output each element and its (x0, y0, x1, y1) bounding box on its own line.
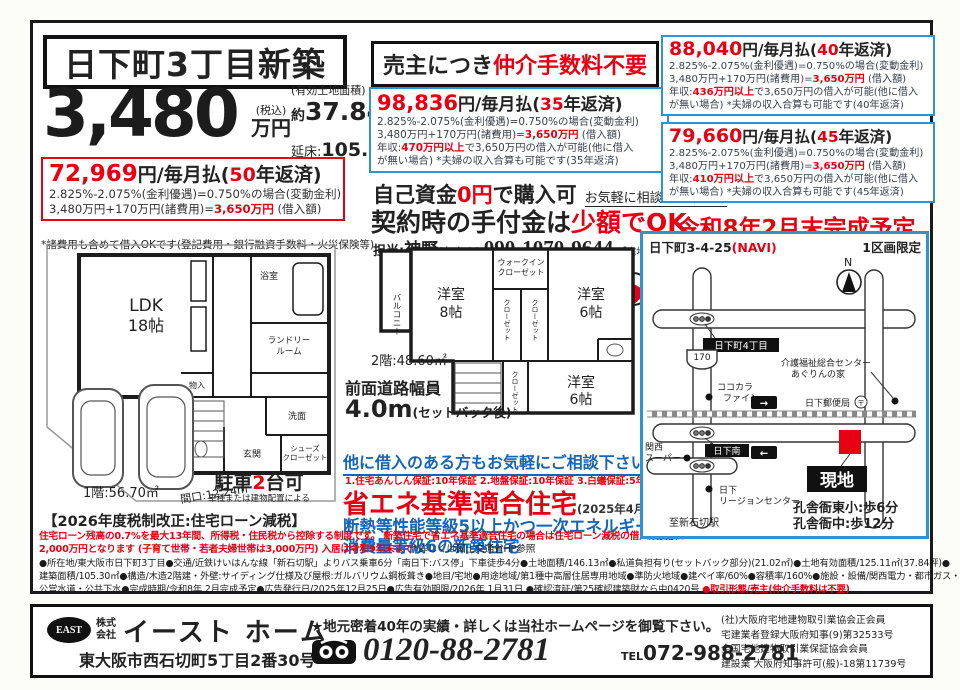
company-address: 東大阪市西石切町5丁目2番30号 (79, 647, 316, 671)
label-wic2: クローゼット (498, 267, 545, 277)
region-center-dot (706, 486, 713, 493)
t: 年収: (669, 174, 693, 185)
plan50-borrow: 3,650万円 (214, 202, 274, 216)
plan35-income2: が無い場合) *夫婦の収入合算も可能です(35年返済) (377, 155, 661, 168)
kansai-super-1: 関西 (645, 442, 663, 453)
label-room8-size: 8帖 (440, 305, 463, 321)
freedial-number: 0120-88-2781 (363, 632, 550, 669)
label-balcony: バルコニー (391, 293, 401, 336)
plan45-sum: 3,480万円+170万円(諸費用)=3,650万円 (借入額) (669, 161, 927, 174)
t: 年返済) (564, 95, 623, 115)
east-logo: EAST (47, 617, 91, 643)
plan50-years: 50 (229, 164, 255, 186)
detail-line-1: ●所在地/東大阪市日下町3丁目●交通/近鉄けいはんな線「新石切駅」よりバス乗車6… (39, 555, 950, 569)
kansai-super-2: スーパー (645, 453, 681, 464)
plan35-borrow: 3,650万円 (525, 129, 579, 141)
label-laundry2: ルーム (276, 347, 301, 357)
t: (借入額) (579, 129, 622, 141)
t: 円/毎月払( (458, 95, 540, 115)
plan45-amount: 79,660 (669, 125, 742, 147)
consult-other-loans: 他に借入のある方もお気軽にご相談下さい (343, 449, 647, 476)
plan35-rate: 2.825%-2.075%(金利優遇)=0.750%の場合(変動金利) (377, 116, 661, 129)
label-room6b: 洋室 (567, 374, 595, 391)
t: 公営水道・公共下水●完成時期/令和8年 2月完成予定●広告発行日/2025年12… (39, 584, 702, 595)
t: 年収: (669, 87, 693, 98)
plan50-amount: 72,969 (49, 161, 138, 187)
region-center-1: 日下 (719, 485, 737, 496)
walk-elementary: 孔舎衙東小:歩6分 (793, 500, 898, 516)
map-compass: N (837, 256, 861, 294)
region-center-2: リージョンセンター (719, 496, 800, 507)
area-2f: 2階:48.60㎡ (371, 354, 447, 369)
label-bath: 浴室 (260, 270, 278, 282)
cocokara-1: ココカラ (717, 382, 753, 393)
compass-n: N (844, 256, 852, 269)
leader-site (841, 454, 850, 466)
route-170: 170 (693, 353, 710, 363)
plan45-years: 45 (817, 128, 839, 146)
label-entrance: 玄関 (243, 448, 261, 460)
plan40-amount: 88,040 (669, 38, 742, 60)
t: 円/毎月払( (742, 41, 817, 59)
tax-note: *詳しくは国土交通省HP参照 (413, 544, 535, 555)
land-approx: 約 (291, 108, 305, 124)
t: で3,650万円の借入が可能(他に借入 (465, 142, 634, 154)
label-cl2: クローゼット (531, 299, 539, 341)
t: 円/毎月払( (138, 164, 230, 186)
badge-4chome: 日下町4丁目 (714, 341, 768, 352)
plan40-years: 40 (817, 41, 839, 59)
license-line: 全国宅地建物取引業保証協会会員 (721, 643, 906, 658)
label-shoes2: クローゼット (283, 452, 328, 462)
no-broker-fee-box: 売主につき仲介手数料不要 (371, 41, 659, 87)
plan40-income: 年収:436万円以上で3,650万円の借入が可能(他に借入 (669, 87, 927, 100)
tax-reform-line2: 2,000万円となります (子育て世帯・若者夫婦世帯は3,000万円) 入居は令… (39, 541, 535, 555)
site-marker (839, 430, 861, 454)
map-drawing: N 日下町4丁目 170 介護福祉総合センター あぐりんの家 ココカラ ファイン (643, 254, 920, 530)
road-setback-note: (セットバック後) (413, 405, 512, 420)
access-map: 日下町3-4-25(NAVI) 1区画限定 (640, 231, 929, 539)
detail-line-3: 公営水道・公共下水●完成時期/令和8年 2月完成予定●広告発行日/2025年12… (39, 581, 850, 595)
post-office: 日下郵便局 (805, 397, 850, 409)
plan40-sum: 3,480万円+170万円(諸費用)=3,650万円 (借入額) (669, 74, 927, 87)
t: (借入額) (274, 202, 322, 216)
t: (借入額) (865, 161, 906, 172)
arrow-right: → (760, 399, 768, 410)
post-mark: 〒 (857, 399, 865, 408)
t: で3,650万円の借入が可能(他に借入 (754, 174, 918, 185)
price-amount: 3,480 (43, 81, 237, 147)
label-wic1: ウォークイン (498, 258, 545, 267)
care-center-dot (892, 398, 899, 405)
t: 3,480万円+170万円(諸費用)= (49, 202, 214, 216)
plan40-headline: 88,040円/毎月払(40年返済) (669, 39, 927, 61)
main-frame: 日下町3丁目新築 3,480 (税込) 万円 (有効土地面積) 約37.84坪付… (30, 20, 933, 594)
label-shoes1: シューズ (290, 443, 320, 453)
label-laundry1: ランドリー (268, 336, 311, 346)
plan45-rate: 2.825%-2.075%(金利優遇)=0.750%の場合(変動金利) (669, 148, 927, 161)
road-width-num: 4.0m (345, 395, 413, 423)
plan35-headline: 98,836円/毎月払(35年返済) (377, 91, 661, 116)
plan40-income2: が無い場合) *夫婦の収入合算も可能です(40年返済) (669, 100, 927, 113)
plan45-headline: 79,660円/毎月払(45年返済) (669, 126, 927, 148)
license-block: (社)大阪府宅地建物取引業協会正会員 宅建業者登録大阪府知事(9)第32533号… (721, 614, 906, 673)
license-line: 宅建業者登録大阪府知事(9)第32533号 (721, 629, 906, 644)
t: 円/毎月払( (742, 128, 817, 146)
plan50-sum: 3,480万円+170万円(諸費用)=3,650万円 (借入額) (49, 202, 337, 217)
t: 契約時の手付金は (371, 208, 571, 237)
tel-label: TEL (621, 650, 643, 663)
t: 年返済) (256, 164, 322, 186)
t: 3,480万円+170万円(諸費用)= (669, 161, 813, 172)
plan35-income: 年収:470万円以上で3,650万円の借入が可能(他に借入 (377, 142, 661, 155)
label-cl3: クローゼット (511, 371, 519, 413)
loan-plan-50yr: 72,969円/毎月払(50年返済) 2.825%-2.075%(金利優遇)=0… (41, 157, 345, 221)
loan-plan-45yr: 79,660円/毎月払(45年返済) 2.825%-2.075%(金利優遇)=0… (661, 122, 935, 203)
plan50-rate: 2.825%-2.075%(金利優遇)=0.750%の場合(変動金利) (49, 187, 337, 202)
roads (647, 268, 915, 528)
broker-black: 売主につき (383, 48, 493, 80)
plan45-income-req: 410万円以上 (693, 174, 754, 185)
t: 3,480万円+170万円(諸費用)= (377, 129, 525, 141)
site-badge: 現地 (820, 470, 854, 491)
label-room6b-size: 6帖 (570, 392, 593, 408)
plan40-rate: 2.825%-2.075%(金利優遇)=0.750%の場合(変動金利) (669, 61, 927, 74)
license-line: (社)大阪府宅地建物取引業協会正会員 (721, 614, 906, 629)
t: 年返済) (839, 128, 893, 146)
t: 年収: (377, 142, 401, 154)
plan35-sum: 3,480万円+170万円(諸費用)=3,650万円 (借入額) (377, 129, 661, 142)
detail-line-2: 建築面積/105.30㎡●構造/木造2階建・外壁:サイディング仕様及び屋根:ガル… (39, 568, 960, 582)
corp-type: 株式 会社 (96, 618, 116, 641)
price-unit: 万円 (251, 117, 291, 139)
label-ldk: LDK (129, 296, 164, 316)
t: 3,480万円+170万円(諸費用)= (669, 74, 813, 85)
real-estate-flyer: 日下町3丁目新築 3,480 (税込) 万円 (有効土地面積) 約37.84坪付… (0, 0, 960, 690)
label-cl1: クローゼット (503, 299, 511, 341)
map-navi: (NAVI) (732, 240, 777, 255)
care-center-1: 介護福祉総合センター (781, 357, 871, 369)
walk-junior-high: 孔舎衙中:歩12分 (793, 516, 894, 530)
corp-1: 株式 (96, 618, 116, 630)
badge-south: 日下南 (713, 445, 740, 457)
plan50-headline: 72,969円/毎月払(50年返済) (49, 161, 337, 187)
care-center-2: あぐりんの家 (791, 368, 845, 380)
loan-plan-35yr: 98,836円/毎月払(35年返済) 2.825%-2.075%(金利優遇)=0… (369, 87, 669, 173)
footer: EAST 株式 会社 イースト ホーム 東大阪市西石切町5丁目2番30号 ★地元… (30, 604, 933, 678)
label-room6a-size: 6帖 (580, 305, 603, 321)
broker-red: 仲介手数料不要 (493, 48, 647, 80)
plan45-income2: が無い場合) *夫婦の収入合算も可能です(45年返済) (669, 187, 927, 200)
tax-reform-line1: 住宅ローン残高の0.7%を最大13年間、所得税・住民税から控除する制度です。 新… (39, 528, 687, 542)
station-label: 至新石切駅 (669, 516, 719, 529)
label-storage: 物入 (189, 380, 205, 390)
map-address-text: 日下町3-4-25 (649, 240, 732, 255)
t: (借入額) (865, 74, 906, 85)
plan35-amount: 98,836 (377, 91, 458, 115)
corp-2: 会社 (96, 630, 116, 642)
plan35-income-req: 470万円以上 (401, 142, 464, 154)
transaction-type: ●取引形態/売主(仲介手数料は不要) (702, 584, 849, 595)
cocokara-dot (706, 394, 713, 401)
label-wash: 洗面 (288, 410, 306, 422)
plan40-income-req: 436万円以上 (693, 87, 754, 98)
cars (73, 385, 193, 489)
area-1f: 1階:56.70㎡ (83, 486, 159, 501)
t: で3,650万円の借入が可能(他に借入 (754, 87, 918, 98)
license-line: 建設業 大阪府知事許可(般)-18第11739号 (721, 658, 906, 673)
route-170-badge: 170 (687, 350, 717, 369)
price-unit-block: (税込) 万円 (251, 105, 291, 139)
kansai-super-dot (684, 455, 691, 462)
label-room8: 洋室 (437, 286, 465, 303)
plan45-borrow: 3,650万円 (813, 161, 865, 172)
road-width-value: 4.0m(セットバック後) (345, 395, 511, 423)
company-name: イースト ホーム (123, 612, 328, 649)
arrow-left: ← (760, 449, 768, 460)
label-ldk-size: 18帖 (128, 316, 164, 335)
floorplan-1f: LDK 18帖 浴室 ランドリー ルーム 洗面 玄関 シューズ クローゼット 物… (41, 239, 341, 507)
freedial-icon (311, 637, 357, 667)
plan45-income: 年収:410万円以上で3,650万円の借入が可能(他に借入 (669, 174, 927, 187)
plan35-years: 35 (540, 95, 564, 115)
label-room6a: 洋室 (577, 286, 605, 303)
loan-plan-40yr: 88,040円/毎月払(40年返済) 2.825%-2.075%(金利優遇)=0… (661, 35, 935, 116)
t: 年返済) (839, 41, 893, 59)
tax-red2: 2,000万円となります (子育て世帯・若者夫婦世帯は3,000万円) 入居は令… (39, 544, 413, 555)
plan40-borrow: 3,650万円 (813, 74, 865, 85)
